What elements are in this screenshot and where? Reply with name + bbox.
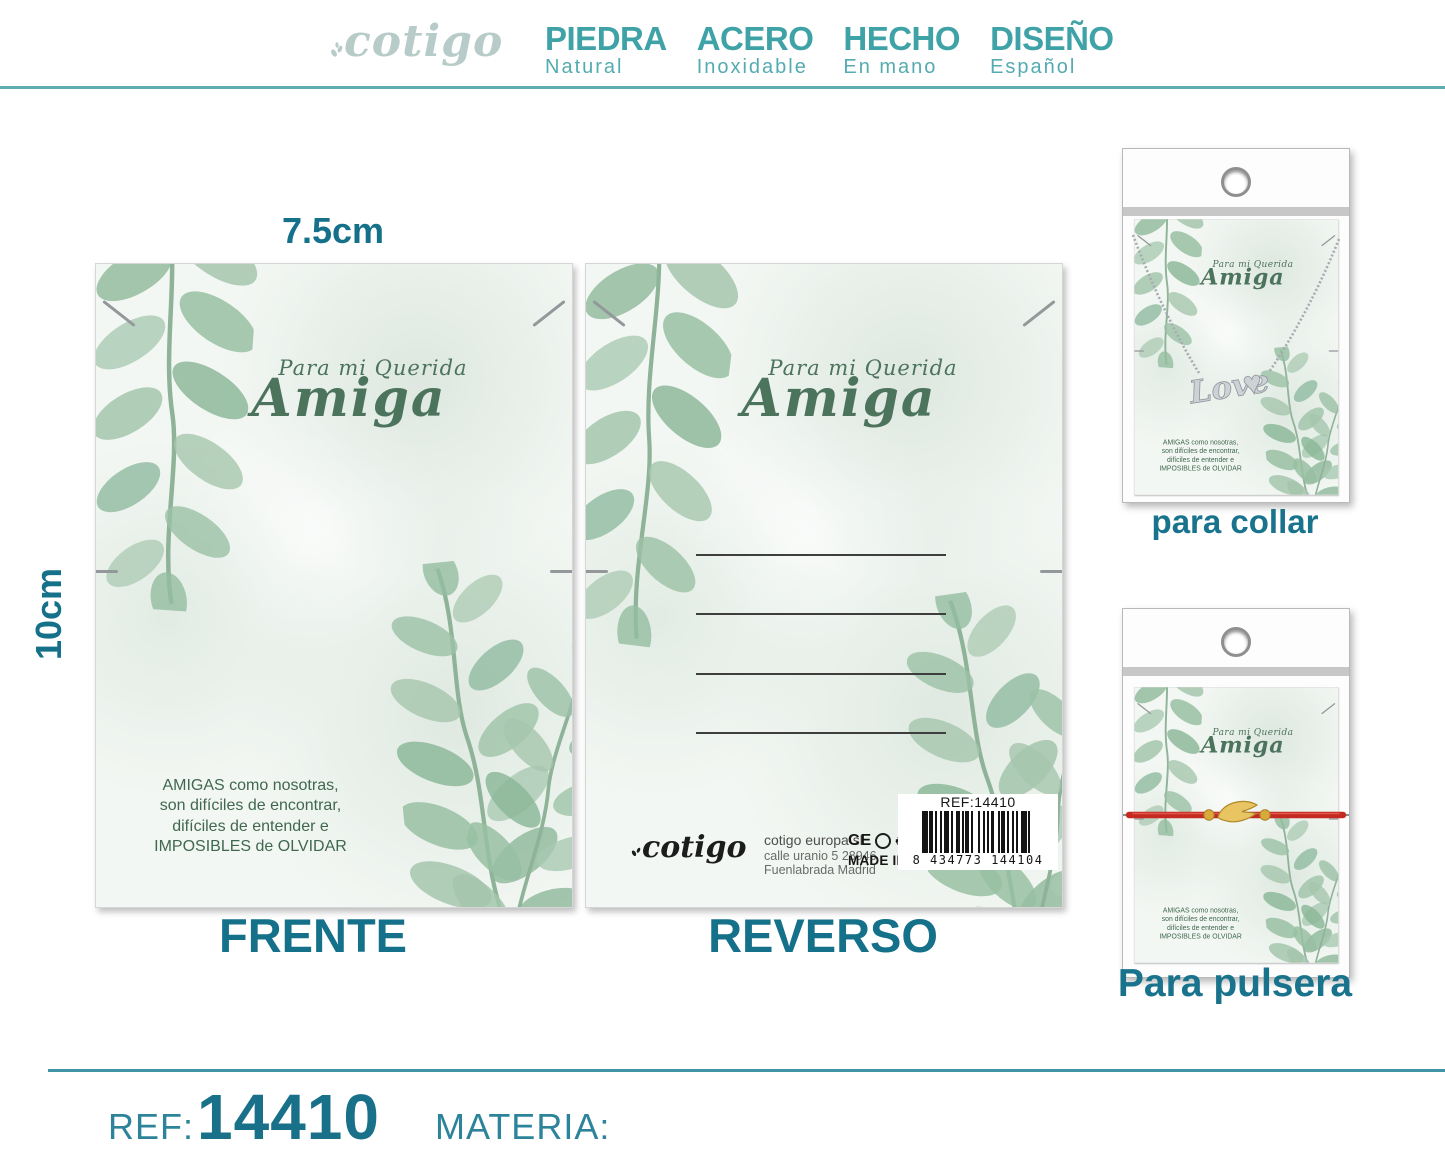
height-label: 10cm <box>28 564 72 664</box>
logo-text: cotigo <box>344 16 503 67</box>
friendship-quote: AMIGAS como nosotras, son difíciles de e… <box>1157 907 1245 942</box>
header-divider <box>0 86 1445 89</box>
barcode-bars <box>898 811 1058 853</box>
bag-seal <box>1123 207 1349 216</box>
bracelet-caption: Para pulsera <box>1115 962 1355 1006</box>
card-slit <box>1137 703 1151 715</box>
card-slit <box>1134 818 1143 819</box>
package-necklace: Para mi Querida Amiga AMIGAS como nosotr… <box>1122 148 1350 503</box>
leaf-mark-icon <box>330 18 346 69</box>
green-dot-icon <box>875 833 891 849</box>
cotigo-logo: cotigo <box>344 16 503 67</box>
ref-label: REF: <box>108 1106 194 1148</box>
friendship-quote: AMIGAS como nosotras, son difíciles de e… <box>1157 439 1245 474</box>
barcode-ref: REF:14410 <box>898 795 1058 810</box>
package-bracelet: Para mi Querida Amiga AMIGAS como nosotr… <box>1122 608 1350 978</box>
writing-line <box>696 554 946 556</box>
card-front: Para mi Querida Amiga AMIGAS como nosotr… <box>95 263 573 908</box>
card-slit <box>96 570 118 573</box>
leaf-branch <box>1255 342 1338 494</box>
hang-hole-icon <box>1221 167 1251 197</box>
friendship-quote: AMIGAS como nosotras, son difíciles de e… <box>148 776 353 858</box>
card-slit <box>1137 235 1151 247</box>
barcode: REF:14410 8 434773 144104 <box>898 794 1058 870</box>
card-slit <box>1321 703 1335 715</box>
mini-card: Para mi Querida Amiga AMIGAS como nosotr… <box>1134 219 1339 495</box>
leaf-branch <box>1281 840 1338 963</box>
card-slit <box>532 300 565 327</box>
ref-value: 14410 <box>197 1080 380 1154</box>
card-back: Para mi Querida Amiga cotigo cotigo euro… <box>585 263 1063 908</box>
writing-line <box>696 732 946 734</box>
badge-acero: ACERO Inoxidable <box>697 22 814 79</box>
back-caption: REVERSO <box>585 908 1061 963</box>
card-slit <box>1022 300 1055 327</box>
hang-hole-icon <box>1221 627 1251 657</box>
width-label: 7.5cm <box>95 210 571 252</box>
dedication: Para mi Querida Amiga <box>1134 727 1338 758</box>
barcode-digits: 8 434773 144104 <box>898 853 1058 867</box>
footer: REF: 14410 MATERIA: <box>108 1080 610 1154</box>
leaf-branch <box>378 551 572 907</box>
writing-line <box>696 673 946 675</box>
card-slit <box>1329 350 1338 351</box>
card-slit <box>550 570 572 573</box>
card-slit <box>1321 235 1335 247</box>
bag-flap <box>1123 149 1349 207</box>
footer-divider <box>48 1069 1445 1072</box>
leaf-branch <box>586 264 746 653</box>
card-slit <box>586 570 608 573</box>
cotigo-logo-black: cotigo <box>642 830 747 865</box>
badge-diseno: DISEÑO Español <box>990 22 1114 79</box>
feature-badges: PIEDRA Natural ACERO Inoxidable HECHO En… <box>545 22 1114 79</box>
dedication: Para mi Querida Amiga <box>96 356 572 429</box>
badge-hecho: HECHO En mano <box>843 22 960 79</box>
badge-piedra: PIEDRA Natural <box>545 22 667 79</box>
card-slit <box>102 300 135 327</box>
bag-seal <box>1123 667 1349 676</box>
card-slit <box>592 300 625 327</box>
dedication: Para mi Querida Amiga <box>1134 259 1338 290</box>
bag-flap <box>1123 609 1349 667</box>
card-slit <box>1040 570 1062 573</box>
writing-line <box>696 613 946 615</box>
card-slit <box>1134 350 1143 351</box>
card-slit <box>1329 818 1338 819</box>
ce-mark: CE <box>848 832 872 850</box>
dedication: Para mi Querida Amiga <box>586 356 1062 429</box>
materia-label: MATERIA: <box>435 1106 610 1148</box>
leaf-branch <box>1281 372 1338 495</box>
leaf-branch <box>1255 810 1338 962</box>
product-sheet: cotigo PIEDRA Natural ACERO Inoxidable H… <box>0 0 1445 1156</box>
necklace-caption: para collar <box>1115 503 1355 541</box>
front-caption: FRENTE <box>75 908 551 963</box>
leaf-mark-icon <box>631 830 643 865</box>
mini-card: Para mi Querida Amiga AMIGAS como nosotr… <box>1134 687 1339 963</box>
leaf-branch <box>438 621 572 907</box>
